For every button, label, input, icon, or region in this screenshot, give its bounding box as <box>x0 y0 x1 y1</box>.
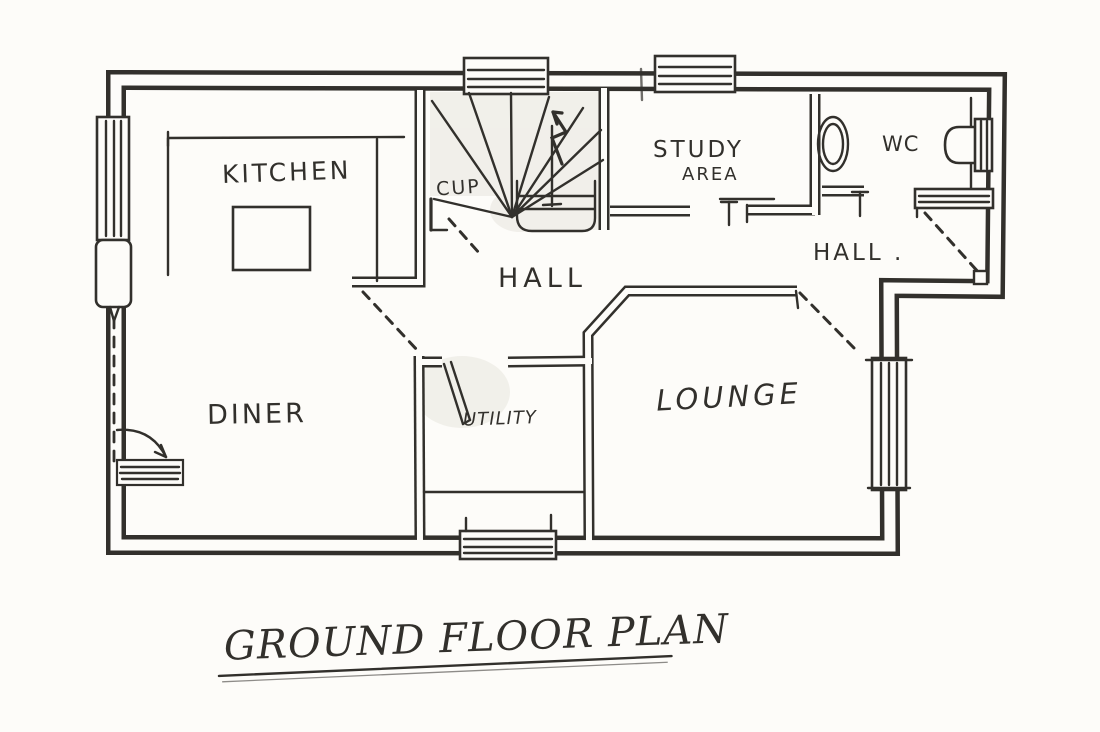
room-label-study: STUDY <box>653 137 744 163</box>
room-label-utility: UTILITY <box>463 407 538 431</box>
wall-joint-mark <box>641 69 642 100</box>
room-label-hall-right: HALL . <box>813 240 904 266</box>
room-label-hall-center: HALL <box>498 263 587 294</box>
window-top-stairs <box>464 58 548 94</box>
room-label-kitchen: KITCHEN <box>222 156 352 189</box>
kitchen-island <box>233 207 310 270</box>
room-label-diner: DINER <box>207 398 307 431</box>
room-label-study-area: AREA <box>682 164 739 185</box>
floor-plan-drawing: KITCHEN CUP STUDY AREA WC HALL HALL . LO… <box>0 0 1100 732</box>
window-lounge-right <box>866 358 912 490</box>
window-top-study <box>655 56 735 92</box>
room-label-wc: WC <box>882 132 919 156</box>
floor-plan-page: KITCHEN CUP STUDY AREA WC HALL HALL . LO… <box>0 0 1100 732</box>
window-kitchen-left <box>97 117 129 240</box>
room-label-cup: CUP <box>435 175 481 200</box>
